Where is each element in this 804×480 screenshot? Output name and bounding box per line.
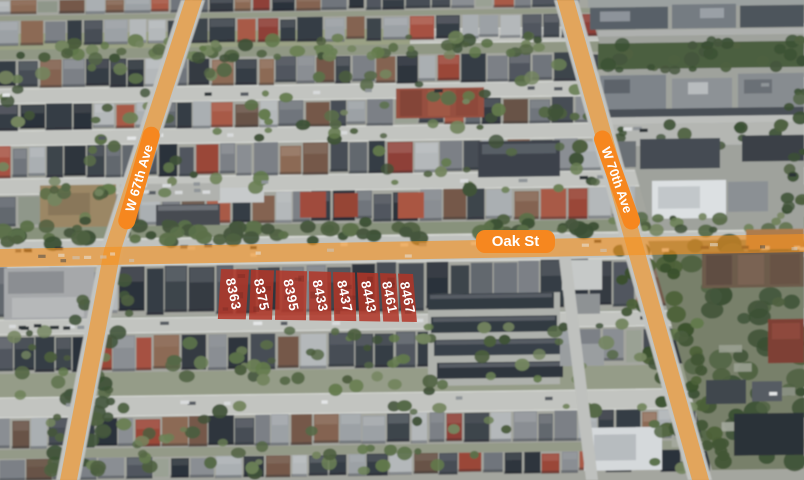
svg-text:Oak St: Oak St: [492, 233, 540, 250]
